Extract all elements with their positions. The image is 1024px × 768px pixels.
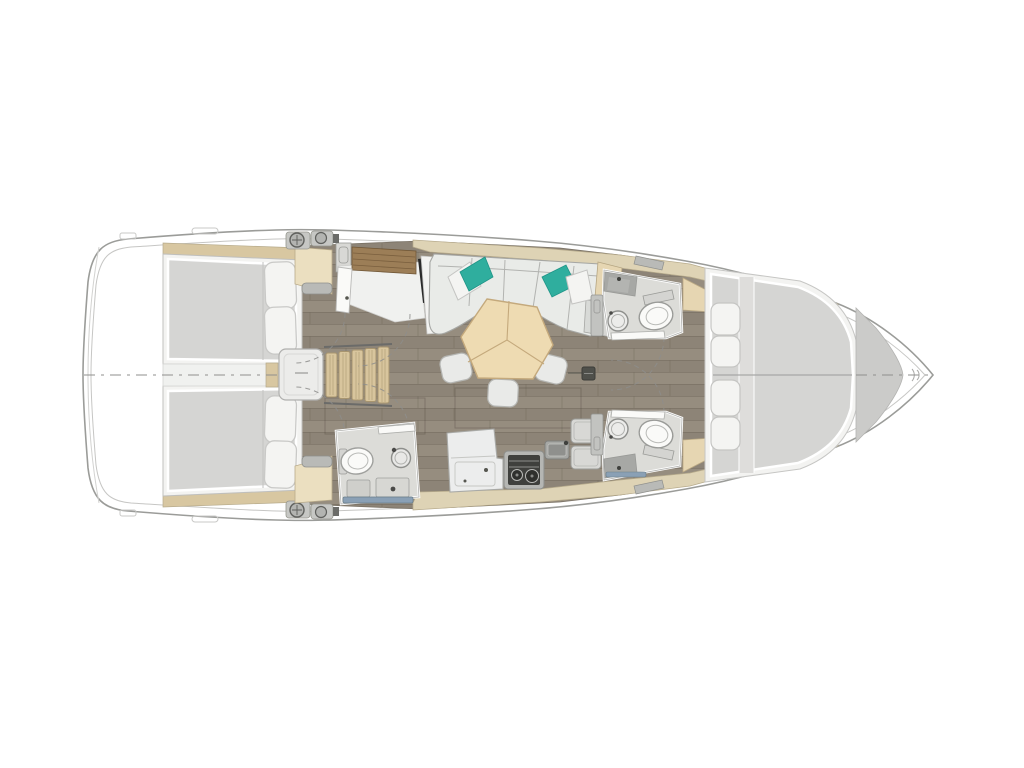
shower-drain bbox=[391, 487, 396, 492]
pillow bbox=[711, 336, 740, 367]
round-sink bbox=[608, 311, 628, 331]
aft-cabin-port bbox=[163, 254, 302, 366]
door-leaf bbox=[336, 267, 352, 313]
pillow bbox=[264, 261, 297, 309]
head-cabinet bbox=[347, 480, 370, 497]
entry-door bbox=[591, 295, 603, 336]
locker-hatch bbox=[302, 283, 332, 294]
locker-hatch bbox=[302, 456, 332, 467]
faucet bbox=[617, 277, 621, 281]
pillow bbox=[264, 395, 297, 443]
stove bbox=[504, 451, 544, 489]
entry-door bbox=[591, 414, 603, 455]
door-handle bbox=[345, 296, 349, 300]
faucet bbox=[617, 466, 621, 470]
counter-handle bbox=[464, 480, 467, 483]
head-door bbox=[611, 410, 665, 419]
nav-shelf bbox=[352, 247, 416, 274]
aft-cabin-starboard bbox=[163, 384, 302, 496]
counter-handle bbox=[484, 468, 488, 472]
companionway-steps bbox=[324, 344, 392, 406]
head-door bbox=[611, 331, 665, 340]
shower-rail bbox=[606, 472, 646, 477]
faucet bbox=[392, 448, 396, 452]
round-sink bbox=[608, 419, 628, 439]
pillow bbox=[711, 303, 740, 335]
stool bbox=[487, 379, 518, 408]
pillow bbox=[264, 306, 297, 354]
pillow bbox=[264, 440, 297, 488]
pillow bbox=[711, 380, 740, 416]
pillow bbox=[711, 417, 740, 450]
shower-rail bbox=[343, 497, 413, 503]
faucet bbox=[564, 441, 568, 445]
boat-floor-plan-page bbox=[0, 0, 1024, 768]
boat-floor-plan bbox=[0, 0, 1024, 768]
galley-sink bbox=[545, 441, 569, 459]
fwd-cabin bbox=[683, 268, 858, 482]
round-sink bbox=[392, 448, 411, 468]
stool bbox=[439, 352, 474, 385]
aft-head bbox=[336, 423, 419, 504]
